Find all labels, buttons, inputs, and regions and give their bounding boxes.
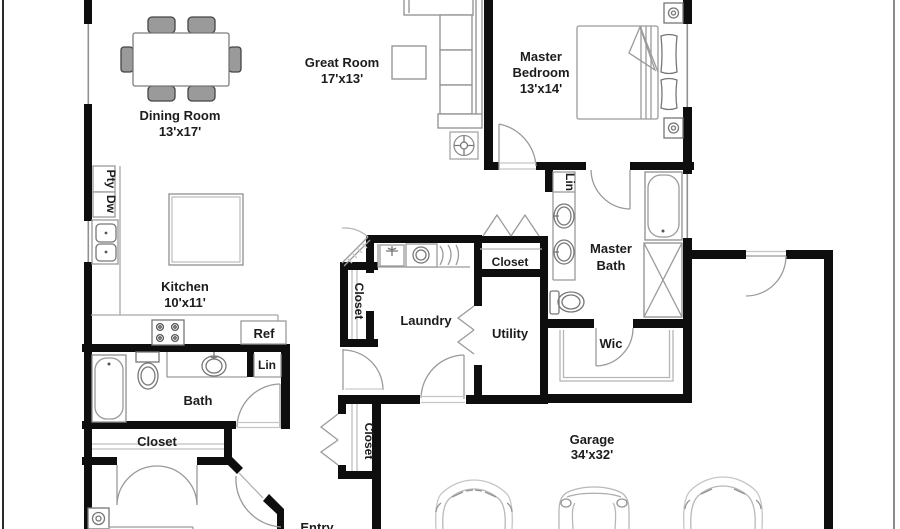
svg-text:Closet: Closet xyxy=(362,423,376,460)
svg-text:Wic: Wic xyxy=(600,336,623,351)
svg-text:Master: Master xyxy=(520,49,562,64)
svg-text:Bath: Bath xyxy=(597,258,626,273)
svg-text:Pty: Pty xyxy=(104,170,118,189)
svg-text:Lin: Lin xyxy=(258,358,276,372)
svg-text:13'x14': 13'x14' xyxy=(520,81,562,96)
svg-text:34'x32': 34'x32' xyxy=(571,447,613,462)
svg-text:Closet: Closet xyxy=(137,434,177,449)
svg-text:Kitchen: Kitchen xyxy=(161,279,209,294)
svg-text:Bedroom: Bedroom xyxy=(512,65,569,80)
svg-text:Dining Room: Dining Room xyxy=(140,108,221,123)
svg-text:Closet: Closet xyxy=(492,255,529,269)
svg-text:Dw: Dw xyxy=(104,195,118,214)
svg-text:Master: Master xyxy=(590,241,632,256)
svg-text:Great Room: Great Room xyxy=(305,55,379,70)
svg-text:Utility: Utility xyxy=(492,326,529,341)
svg-text:Laundry: Laundry xyxy=(400,313,452,328)
svg-text:17'x13': 17'x13' xyxy=(321,71,363,86)
svg-text:Closet: Closet xyxy=(352,283,366,320)
svg-text:Ref: Ref xyxy=(254,326,276,341)
svg-text:Garage: Garage xyxy=(570,432,615,447)
svg-text:13'x17': 13'x17' xyxy=(159,124,201,139)
svg-text:Bath: Bath xyxy=(184,393,213,408)
svg-text:Lin: Lin xyxy=(563,173,577,191)
svg-text:Entry: Entry xyxy=(300,520,334,529)
svg-text:10'x11': 10'x11' xyxy=(164,295,206,310)
